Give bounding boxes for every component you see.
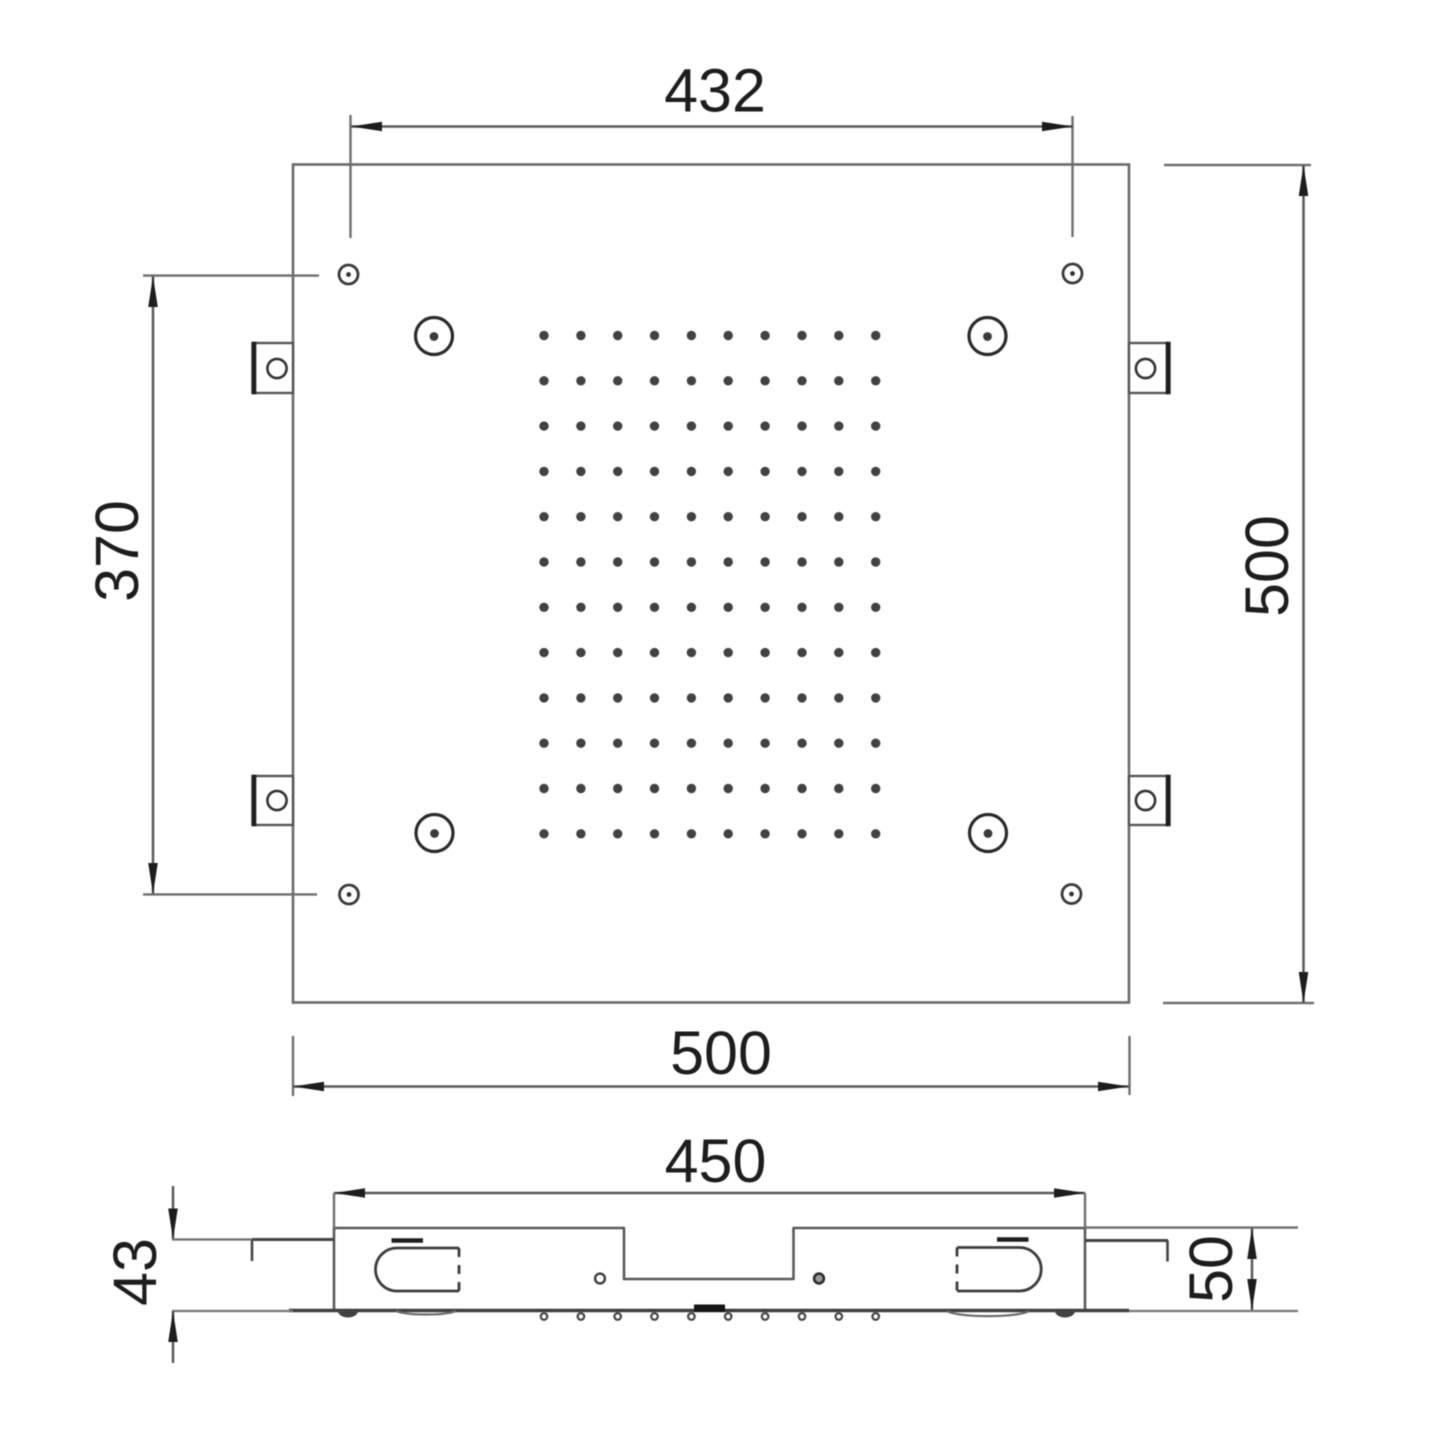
svg-text:50: 50: [1177, 1235, 1245, 1303]
svg-text:500: 500: [1233, 515, 1301, 617]
svg-text:370: 370: [83, 500, 151, 602]
svg-text:432: 432: [664, 57, 766, 125]
svg-text:43: 43: [101, 1238, 169, 1306]
svg-text:500: 500: [670, 1019, 772, 1087]
svg-text:450: 450: [665, 1127, 767, 1195]
